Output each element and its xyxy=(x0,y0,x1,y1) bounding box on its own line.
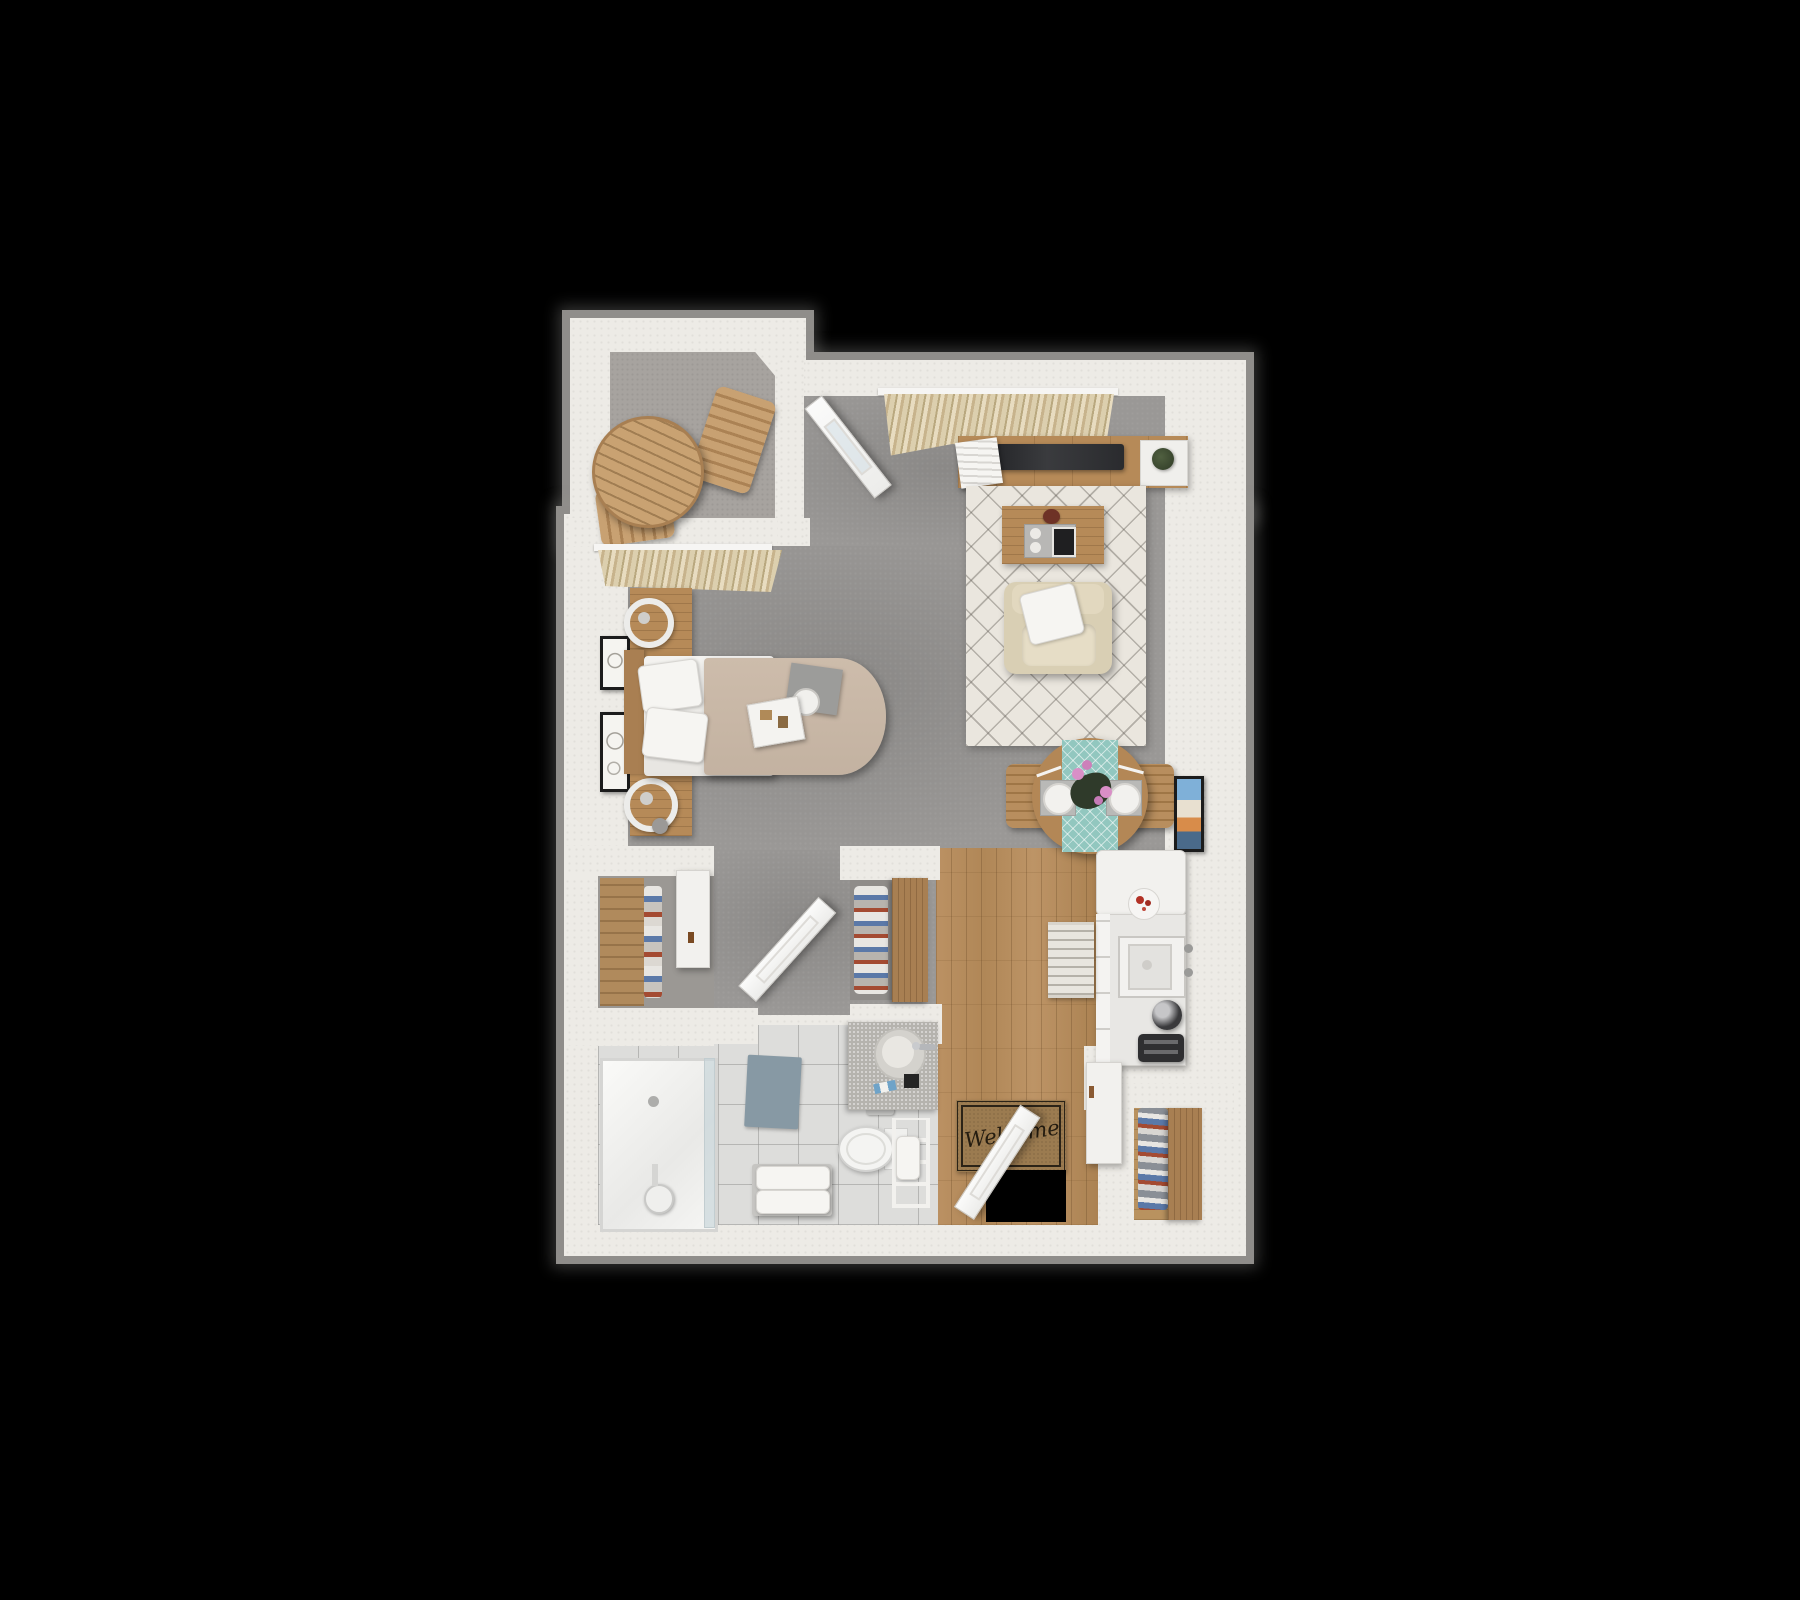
ladder-towel xyxy=(896,1136,920,1180)
closet-white-sliding-door xyxy=(676,870,710,968)
bedroom-closet-south-wall xyxy=(566,1008,714,1046)
bedroom-curtain-rod xyxy=(594,544,772,551)
balcony-living-divider-wall xyxy=(778,358,804,546)
bench-towel-1 xyxy=(756,1166,830,1190)
console-plant xyxy=(1152,448,1174,470)
toilet-seat-line xyxy=(846,1133,886,1165)
kitchen-cabinet-fronts xyxy=(1096,914,1110,1064)
ring-lamp-north xyxy=(624,598,674,648)
soap-dish xyxy=(904,1074,919,1088)
magazine-stack xyxy=(955,437,1003,488)
vanity-faucet-spout xyxy=(912,1042,920,1050)
bedroom-closet-shelves xyxy=(600,878,644,1006)
bed-pillow-1 xyxy=(637,658,703,714)
tray-remote xyxy=(1052,527,1076,557)
entry-closet-north-wall xyxy=(840,846,940,880)
shoe-closet-wood-door xyxy=(1168,1108,1202,1220)
entry-closet-wood-door xyxy=(892,878,928,1002)
bathroom-door-west-jamb xyxy=(714,1008,758,1044)
flower-1 xyxy=(1072,768,1084,780)
shoe-rack xyxy=(1138,1108,1168,1210)
bedroom-curtains xyxy=(598,550,782,592)
bench-towel-2 xyxy=(756,1190,830,1214)
plate-east xyxy=(1109,783,1141,815)
lamp-south-bulb xyxy=(640,792,653,805)
vanity-sink-basin xyxy=(882,1036,914,1068)
shoe-closet-north-wall xyxy=(1118,1084,1234,1110)
lamp-north-bulb xyxy=(638,612,650,624)
flower-3 xyxy=(1100,786,1112,798)
entry-lower-cabinet xyxy=(1086,1062,1122,1164)
shower-glass-panel xyxy=(704,1058,715,1228)
ring-lamp-south xyxy=(624,778,678,832)
stove-knob-2 xyxy=(1184,968,1193,977)
lamp-south-orb xyxy=(652,818,668,834)
oven-dot xyxy=(1142,960,1152,970)
cabinet-handle xyxy=(1089,1086,1094,1098)
flower-2 xyxy=(1082,760,1092,770)
coffee-maker xyxy=(1152,1000,1182,1030)
tray-cup-2 xyxy=(1030,542,1041,553)
shower-column xyxy=(644,1184,674,1214)
bed-pillow-2 xyxy=(641,706,709,763)
patio-table xyxy=(592,416,704,528)
decor-plate xyxy=(1128,888,1160,920)
entry-closet-clothes xyxy=(854,886,888,994)
tray-food-2 xyxy=(778,716,788,728)
kitchen-runner-rug xyxy=(1048,922,1094,998)
toaster-slots xyxy=(1144,1040,1178,1054)
vanity-faucet xyxy=(918,1044,936,1050)
bedroom-closet-clothes xyxy=(644,886,662,998)
tray-cup-1 xyxy=(1030,528,1041,539)
leaning-wall-art xyxy=(1174,776,1204,852)
stove-knob-1 xyxy=(1184,944,1193,953)
coffee-table-bowl xyxy=(1043,509,1060,524)
tv-flat xyxy=(996,444,1124,470)
shower-drain xyxy=(648,1096,659,1107)
closet-door-handle xyxy=(688,932,694,943)
flower-4 xyxy=(1094,796,1103,805)
living-curtain-rod xyxy=(878,388,1118,395)
tray-food xyxy=(760,710,772,720)
shower-column-bracket xyxy=(652,1164,658,1186)
bed-breakfast-tray xyxy=(747,696,806,748)
bath-mat xyxy=(744,1055,802,1130)
floor-plan-scene: Welcome xyxy=(0,0,1800,1600)
decor-plate-flowers xyxy=(1136,896,1144,904)
